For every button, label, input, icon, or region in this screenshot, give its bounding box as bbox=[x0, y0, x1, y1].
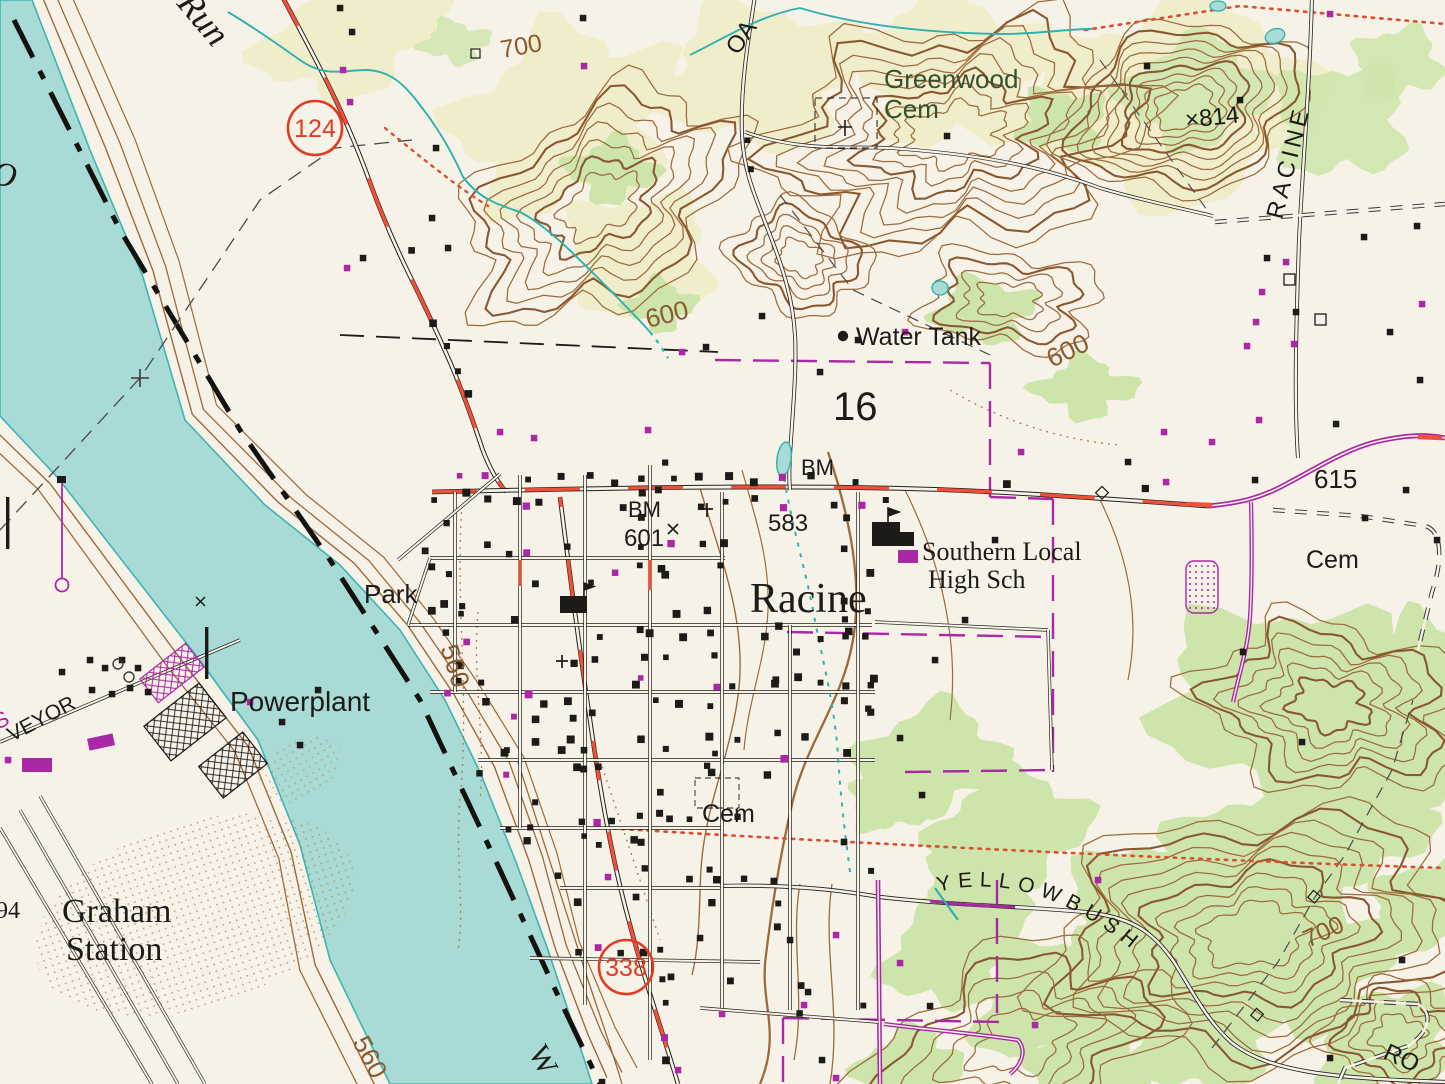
water-tank-dot-icon bbox=[838, 331, 848, 341]
topo-map: Run O 124 338 700 600 600 560 560 700 OA… bbox=[0, 0, 1445, 1084]
label-water-tank: Water Tank bbox=[856, 323, 982, 351]
label-school-1: Southern Local bbox=[922, 537, 1082, 566]
school-building bbox=[560, 596, 587, 613]
label-spot-814: ×814 bbox=[1184, 101, 1241, 134]
label-bm583: BM bbox=[801, 455, 834, 480]
topo-map-stage: Run O 124 338 700 600 600 560 560 700 OA… bbox=[0, 0, 1445, 1084]
label-bm601: BM bbox=[628, 497, 661, 522]
label-cem-center: Cem bbox=[702, 800, 755, 828]
dock-bar bbox=[205, 627, 208, 679]
label-graham-2: Station bbox=[66, 931, 162, 968]
dock-bar bbox=[6, 497, 9, 549]
label-cem-right: Cem bbox=[1306, 546, 1359, 574]
label-greenwood-cem-2: Cem bbox=[884, 94, 939, 124]
label-graham-1: Graham bbox=[62, 893, 172, 930]
label-shield-338: 338 bbox=[605, 954, 647, 982]
label-town-racine: Racine bbox=[750, 576, 867, 622]
label-spot-94: 94 bbox=[0, 898, 20, 924]
label-bm583-value: 583 bbox=[768, 510, 808, 537]
label-school-2: High Sch bbox=[928, 565, 1026, 594]
label-powerplant: Powerplant bbox=[230, 686, 370, 717]
label-spot-615: 615 bbox=[1314, 464, 1357, 494]
cemetery-stipple bbox=[1186, 561, 1218, 613]
label-shield-124: 124 bbox=[294, 115, 336, 143]
label-bm601-value: 601 bbox=[624, 525, 664, 552]
label-park: Park bbox=[364, 579, 418, 609]
label-greenwood-cem-1: Greenwood bbox=[884, 64, 1018, 94]
label-section-16: 16 bbox=[833, 385, 878, 429]
